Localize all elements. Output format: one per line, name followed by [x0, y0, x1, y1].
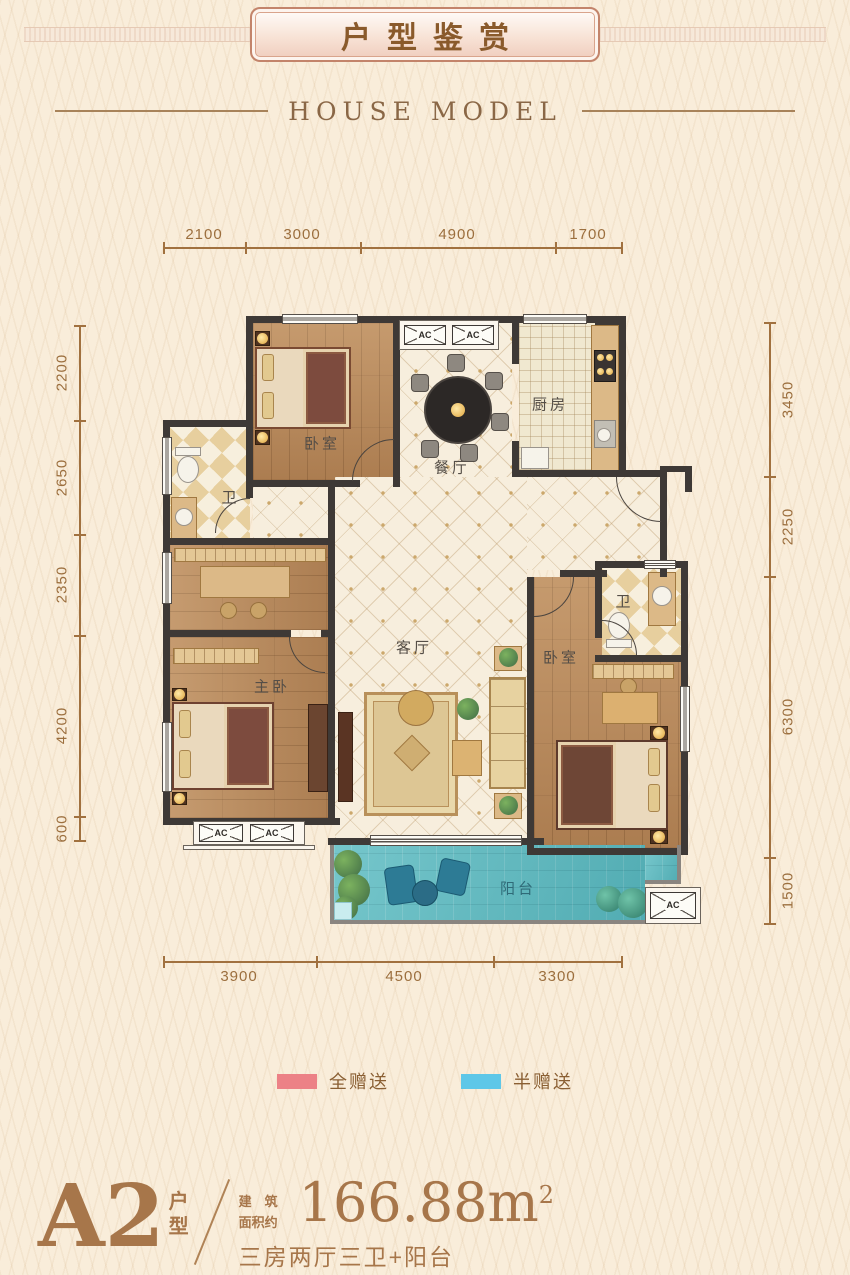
- dim-value: 1700: [563, 226, 613, 243]
- plan-summary: A2 户 型 建筑 面积约 166.88m2 三房两厅三卫+阳台: [38, 1176, 554, 1272]
- full-gift-label: 全赠送: [329, 1068, 389, 1094]
- bed-blanket: [558, 742, 616, 828]
- dim-value: 2350: [54, 555, 71, 615]
- legend-item-full-gift: 全赠送: [277, 1068, 389, 1094]
- burner: [597, 354, 604, 361]
- room-label-kitchen: 厨房: [532, 394, 568, 415]
- chair: [250, 602, 267, 619]
- dim-tick: [74, 635, 86, 637]
- dim-tick: [764, 476, 776, 478]
- wall: [321, 630, 335, 637]
- dim-tick: [764, 923, 776, 925]
- ac-label: AC: [264, 829, 281, 838]
- wall: [512, 470, 667, 477]
- dim-value: 2250: [780, 497, 797, 557]
- bookshelf: [592, 664, 674, 679]
- room-label-balcony: 阳台: [500, 878, 536, 899]
- kitchen-counter: [591, 325, 619, 472]
- plant-icon: [457, 698, 479, 720]
- wall: [595, 568, 602, 638]
- balcony-floor: [334, 845, 645, 922]
- ac-label: AC: [213, 829, 230, 838]
- subtitle-row: HOUSE MODEL: [55, 96, 795, 126]
- layout-description: 三房两厅三卫+阳台: [239, 1238, 554, 1272]
- half-gift-label: 半赠送: [513, 1068, 573, 1094]
- toilet: [177, 456, 199, 483]
- legend-item-half-gift: 半赠送: [461, 1068, 573, 1094]
- room-label-master: 主卧: [254, 676, 290, 697]
- dining-chair: [491, 413, 509, 431]
- dim-value: 4900: [432, 226, 482, 243]
- plan-type-char-2: 型: [169, 1215, 189, 1240]
- bay-sill: [183, 845, 315, 850]
- divider-slash: [193, 1179, 229, 1265]
- lamp-icon: [174, 793, 185, 804]
- lamp-icon: [257, 333, 268, 344]
- burner: [606, 368, 613, 375]
- fridge: [521, 447, 549, 469]
- half-gift-swatch: [461, 1074, 501, 1089]
- dim-value: 600: [54, 799, 71, 859]
- page-title: 户型鉴赏: [325, 13, 525, 57]
- balcony-wall: [677, 845, 681, 884]
- dim-line-top: [163, 247, 623, 249]
- ac-unit: AC: [250, 824, 294, 842]
- balcony-wall: [330, 845, 334, 924]
- dim-tick: [621, 242, 623, 254]
- wall: [328, 487, 335, 825]
- balcony-floor-step: [645, 855, 678, 883]
- window: [282, 314, 358, 324]
- room-label-bedroom-top: 卧室: [304, 433, 340, 454]
- area-number: 166.88m: [299, 1171, 539, 1234]
- chair: [220, 602, 237, 619]
- dim-tick: [74, 816, 86, 818]
- ac-label: AC: [665, 901, 682, 910]
- coffee-table: [452, 740, 482, 776]
- dim-value: 3450: [780, 370, 797, 430]
- dim-value: 4500: [379, 968, 429, 985]
- subtitle-rule-right: [582, 110, 795, 112]
- wall: [619, 316, 626, 477]
- sink: [652, 586, 672, 606]
- sofa: [489, 677, 526, 789]
- plant-icon: [499, 648, 518, 667]
- dim-value: 3000: [277, 226, 327, 243]
- wall: [246, 316, 253, 427]
- tv-cabinet: [338, 712, 353, 802]
- wall: [163, 630, 291, 637]
- dim-tick: [621, 956, 623, 968]
- dim-value: 2100: [179, 226, 229, 243]
- burner: [597, 368, 604, 375]
- ac-unit: AC: [650, 892, 696, 919]
- dim-value: 3300: [532, 968, 582, 985]
- dim-tick: [555, 242, 557, 254]
- room-label-bath-left: 卫: [221, 487, 236, 508]
- dining-chair: [447, 354, 465, 372]
- bed-blanket: [224, 704, 272, 788]
- window: [162, 552, 172, 604]
- plan-type: 户 型: [169, 1190, 189, 1240]
- area-row: 建筑 面积约 166.88m2: [239, 1176, 554, 1234]
- dining-chair: [421, 440, 439, 458]
- dim-tick: [74, 840, 86, 842]
- bookshelf: [173, 648, 259, 664]
- window: [162, 437, 172, 495]
- balcony-wall: [330, 920, 648, 924]
- window: [644, 560, 676, 569]
- wall: [246, 420, 253, 498]
- balcony-table: [412, 880, 438, 906]
- ac-unit: AC: [452, 325, 494, 345]
- room-label-bath-right: 卫: [615, 591, 630, 612]
- dim-tick: [764, 322, 776, 324]
- dim-line-right: [769, 322, 771, 925]
- pillow: [262, 354, 274, 381]
- dim-tick: [74, 325, 86, 327]
- dim-tick: [245, 242, 247, 254]
- plan-type-char-1: 户: [169, 1190, 189, 1215]
- floorplan-page: 户型鉴赏 HOUSE MODEL 2100 3000 4900 1700 390…: [0, 0, 850, 1275]
- ac-label: AC: [417, 331, 434, 340]
- page-subtitle: HOUSE MODEL: [288, 97, 562, 126]
- wall: [527, 577, 534, 848]
- bookshelf: [174, 548, 326, 562]
- pillow: [262, 392, 274, 419]
- dim-tick: [163, 242, 165, 254]
- dim-tick: [493, 956, 495, 968]
- dining-chair: [411, 374, 429, 392]
- area-superscript: 2: [539, 1181, 554, 1209]
- dim-tick: [316, 956, 318, 968]
- dim-tick: [163, 956, 165, 968]
- wall: [595, 655, 688, 662]
- dim-line-bottom: [163, 961, 623, 963]
- area-label-line1: 建筑: [239, 1192, 291, 1213]
- dim-value: 1500: [780, 861, 797, 921]
- wall: [163, 538, 335, 545]
- lamp-icon: [653, 831, 665, 843]
- ac-label: AC: [465, 331, 482, 340]
- balcony-pad: [334, 902, 352, 920]
- wall: [246, 480, 360, 487]
- legend: 全赠送 半赠送: [0, 1068, 850, 1094]
- area-labels: 建筑 面积约: [239, 1192, 291, 1234]
- desk: [602, 692, 658, 724]
- wall: [163, 420, 253, 427]
- sink-basin: [597, 428, 611, 442]
- ac-unit: AC: [404, 325, 446, 345]
- plan-code: A2: [38, 1176, 165, 1258]
- dim-value: 6300: [780, 687, 797, 747]
- window: [162, 722, 172, 792]
- area-block: 建筑 面积约 166.88m2 三房两厅三卫+阳台: [239, 1176, 554, 1272]
- burner: [606, 354, 613, 361]
- wall: [512, 316, 519, 364]
- full-gift-swatch: [277, 1074, 317, 1089]
- lamp-icon: [257, 432, 268, 443]
- ac-unit: AC: [199, 824, 243, 842]
- dim-tick: [360, 242, 362, 254]
- area-value: 166.88m2: [299, 1176, 554, 1230]
- sink: [175, 508, 193, 526]
- dim-tick: [764, 576, 776, 578]
- title-plaque: 户型鉴赏: [250, 7, 600, 62]
- plant-icon: [499, 796, 518, 815]
- pillow: [648, 784, 660, 812]
- dim-value: 2200: [54, 343, 71, 403]
- subtitle-rule-left: [55, 110, 268, 112]
- dim-tick: [74, 534, 86, 536]
- sliding-door: [370, 835, 522, 846]
- toilet-tank: [175, 447, 201, 456]
- desk: [200, 566, 290, 598]
- dim-value: 4200: [54, 696, 71, 756]
- window: [523, 314, 587, 324]
- dim-tick: [764, 857, 776, 859]
- dining-chair: [485, 372, 503, 390]
- hall-floor: [253, 487, 328, 538]
- bed-blanket: [303, 349, 349, 427]
- table-centerpiece: [451, 403, 465, 417]
- window: [680, 686, 690, 752]
- area-label-line2: 面积约: [239, 1213, 291, 1234]
- dim-tick: [74, 420, 86, 422]
- wall: [527, 848, 688, 855]
- pillow: [179, 710, 191, 738]
- dim-value: 2650: [54, 448, 71, 508]
- pillow: [179, 750, 191, 778]
- pillow: [648, 748, 660, 776]
- wall: [685, 466, 692, 492]
- dim-line-left: [79, 325, 81, 842]
- lamp-icon: [653, 727, 665, 739]
- room-label-dining: 餐厅: [434, 457, 470, 478]
- room-label-bedroom-right: 卧室: [543, 647, 579, 668]
- room-label-living: 客厅: [396, 637, 432, 658]
- dim-value: 3900: [214, 968, 264, 985]
- plant-icon: [618, 888, 648, 918]
- ottoman: [398, 690, 434, 726]
- lamp-icon: [174, 689, 185, 700]
- balcony-wall: [645, 880, 681, 884]
- wardrobe: [308, 704, 328, 792]
